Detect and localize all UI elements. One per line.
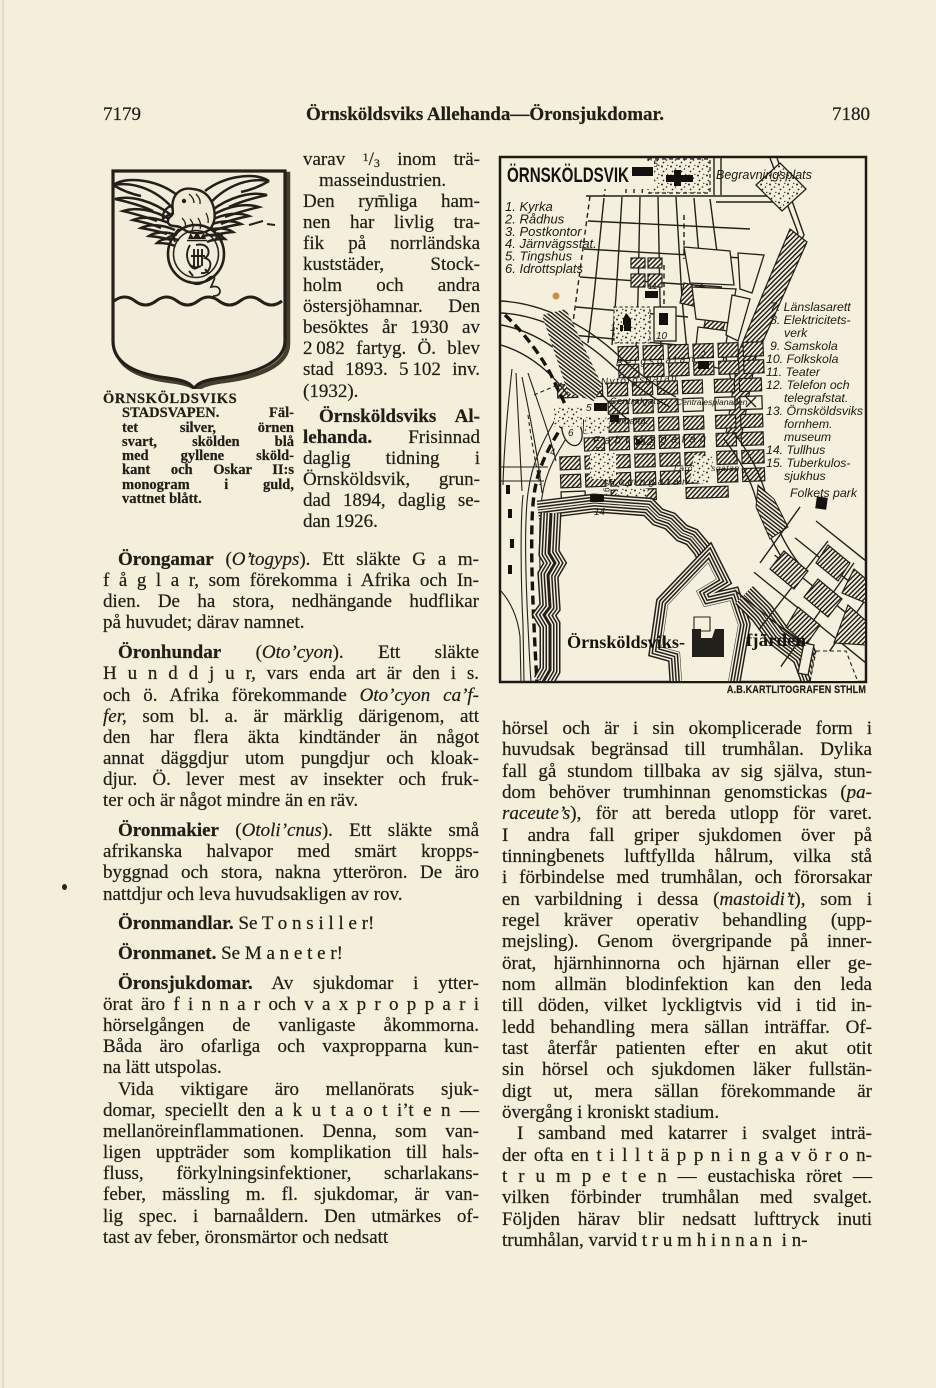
svg-text:15. Tuberkulos-: 15. Tuberkulos- xyxy=(766,456,851,470)
svg-text:ÖRNSKÖLDSVIK: ÖRNSKÖLDSVIK xyxy=(507,162,629,187)
svg-text:12: 12 xyxy=(641,437,653,448)
svg-text:14: 14 xyxy=(594,507,606,518)
svg-text:11: 11 xyxy=(648,281,657,291)
svg-text:6: 6 xyxy=(568,428,574,439)
svg-text:telegrafstat.: telegrafstat. xyxy=(784,391,848,405)
svg-text:verk: verk xyxy=(784,326,808,340)
svg-text:1: 1 xyxy=(610,323,616,334)
svg-text:fornhem.: fornhem. xyxy=(784,417,833,431)
svg-text:Centralgat.: Centralgat. xyxy=(610,396,660,406)
svg-text:10: 10 xyxy=(656,331,668,342)
svg-text:11. Teater: 11. Teater xyxy=(766,365,821,379)
svg-text:9. Samskola: 9. Samskola xyxy=(770,339,838,353)
svg-text:12. Telefon och: 12. Telefon och xyxy=(766,378,850,392)
svg-text:7. Länslasarett: 7. Länslasarett xyxy=(770,300,851,314)
svg-text:Begravningsplats: Begravningsplats xyxy=(716,168,812,182)
svg-text:5: 5 xyxy=(586,403,592,414)
svg-text:Örnsköldsviks-: Örnsköldsviks- xyxy=(567,632,685,652)
svg-text:Folkets park: Folkets park xyxy=(790,486,858,500)
svg-text:2: 2 xyxy=(699,350,706,361)
svg-text:14. Tullhus: 14. Tullhus xyxy=(766,443,825,457)
svg-text:10. Folkskola: 10. Folkskola xyxy=(766,352,839,366)
svg-text:Centralesplanaden: Centralesplanaden xyxy=(676,397,748,407)
svg-text:4: 4 xyxy=(550,447,555,457)
svg-text:8. Elektricitets-: 8. Elektricitets- xyxy=(770,313,851,327)
svg-text:museum: museum xyxy=(784,430,831,444)
svg-text:sjukhus: sjukhus xyxy=(784,469,826,483)
svg-text:fjärden: fjärden xyxy=(746,630,806,650)
svg-text:6. Idrottsplats: 6. Idrottsplats xyxy=(505,261,584,276)
svg-text:13. Örnsköldsviks: 13. Örnsköldsviks xyxy=(766,404,863,418)
